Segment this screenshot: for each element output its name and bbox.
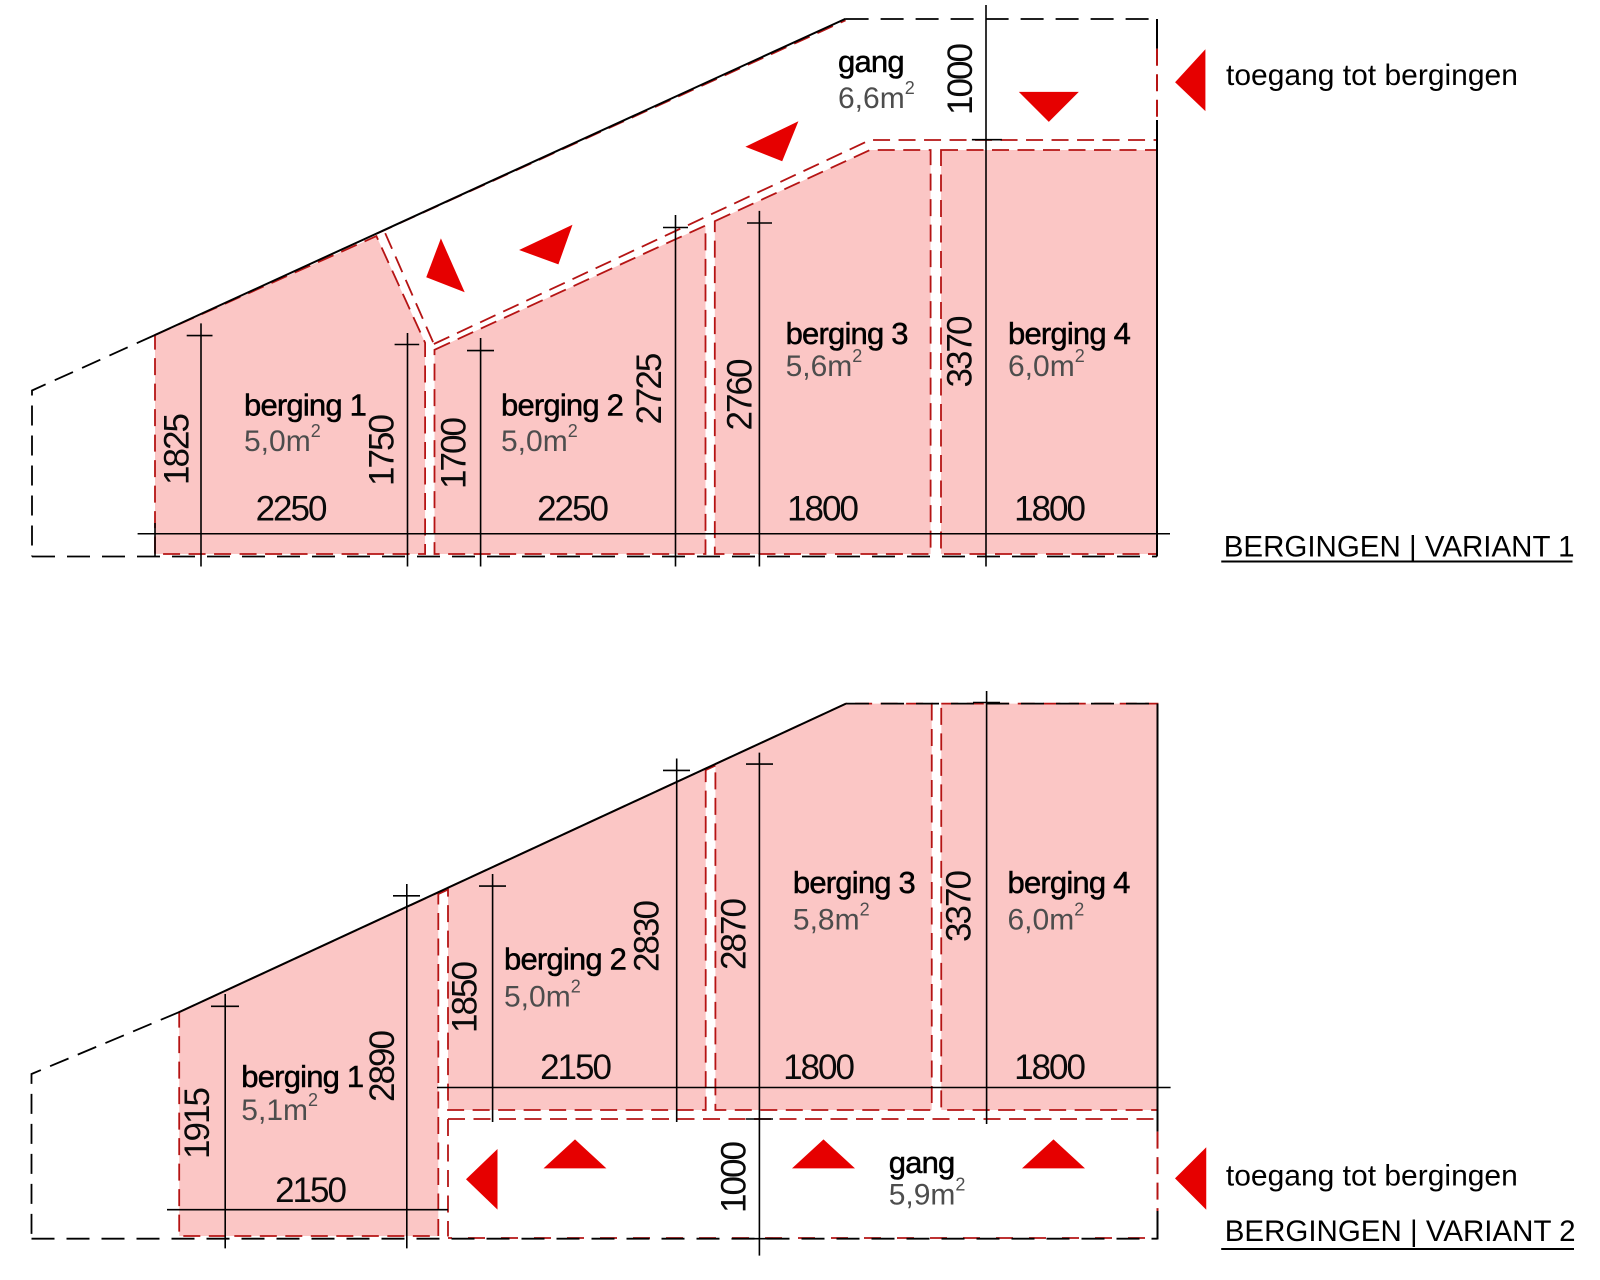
svg-text:6,0m2: 6,0m2 [1008, 900, 1085, 937]
svg-text:1915: 1915 [178, 1089, 217, 1159]
svg-text:1850: 1850 [445, 962, 484, 1033]
svg-text:5,1m2: 5,1m2 [241, 1090, 318, 1127]
svg-text:5,0m2: 5,0m2 [501, 421, 578, 458]
svg-text:berging 1: berging 1 [244, 388, 366, 423]
svg-text:2250: 2250 [537, 490, 608, 529]
svg-text:1700: 1700 [434, 418, 473, 489]
svg-text:berging 4: berging 4 [1008, 865, 1131, 900]
svg-text:2760: 2760 [720, 359, 759, 430]
svg-text:5,8m2: 5,8m2 [793, 900, 870, 937]
svg-text:5,0m2: 5,0m2 [504, 977, 581, 1014]
svg-text:1000: 1000 [941, 44, 980, 115]
svg-text:gang: gang [889, 1145, 955, 1180]
svg-text:6,6m2: 6,6m2 [838, 78, 915, 115]
svg-text:1800: 1800 [787, 490, 858, 529]
svg-text:6,0m2: 6,0m2 [1008, 346, 1085, 383]
svg-text:1800: 1800 [783, 1048, 854, 1087]
svg-text:2830: 2830 [627, 901, 666, 972]
svg-text:BERGINGEN | VARIANT 1: BERGINGEN | VARIANT 1 [1224, 530, 1575, 563]
svg-text:3370: 3370 [939, 871, 978, 942]
svg-text:5,9m2: 5,9m2 [889, 1175, 966, 1212]
svg-text:2725: 2725 [630, 354, 669, 424]
svg-text:1800: 1800 [1014, 490, 1085, 529]
svg-text:toegang tot bergingen: toegang tot bergingen [1226, 1159, 1518, 1192]
svg-text:berging 1: berging 1 [241, 1059, 363, 1094]
svg-text:berging 2: berging 2 [501, 388, 623, 423]
svg-text:2150: 2150 [275, 1171, 346, 1210]
svg-text:2870: 2870 [714, 899, 753, 970]
svg-text:2150: 2150 [540, 1048, 611, 1087]
svg-text:berging 3: berging 3 [786, 316, 908, 351]
svg-text:berging 2: berging 2 [504, 942, 626, 977]
svg-text:1825: 1825 [157, 415, 196, 485]
svg-text:berging 3: berging 3 [793, 865, 915, 900]
svg-text:toegang tot bergingen: toegang tot bergingen [1226, 59, 1518, 92]
svg-text:2890: 2890 [363, 1031, 402, 1102]
svg-text:5,0m2: 5,0m2 [244, 421, 321, 458]
svg-text:2250: 2250 [256, 490, 327, 529]
svg-text:BERGINGEN | VARIANT 2: BERGINGEN | VARIANT 2 [1225, 1215, 1576, 1248]
svg-text:1000: 1000 [714, 1142, 753, 1213]
svg-text:1800: 1800 [1014, 1048, 1085, 1087]
svg-text:1750: 1750 [362, 415, 401, 486]
svg-text:5,6m2: 5,6m2 [786, 346, 863, 383]
svg-text:gang: gang [838, 44, 904, 79]
svg-text:3370: 3370 [940, 316, 979, 387]
svg-text:berging 4: berging 4 [1008, 316, 1131, 351]
